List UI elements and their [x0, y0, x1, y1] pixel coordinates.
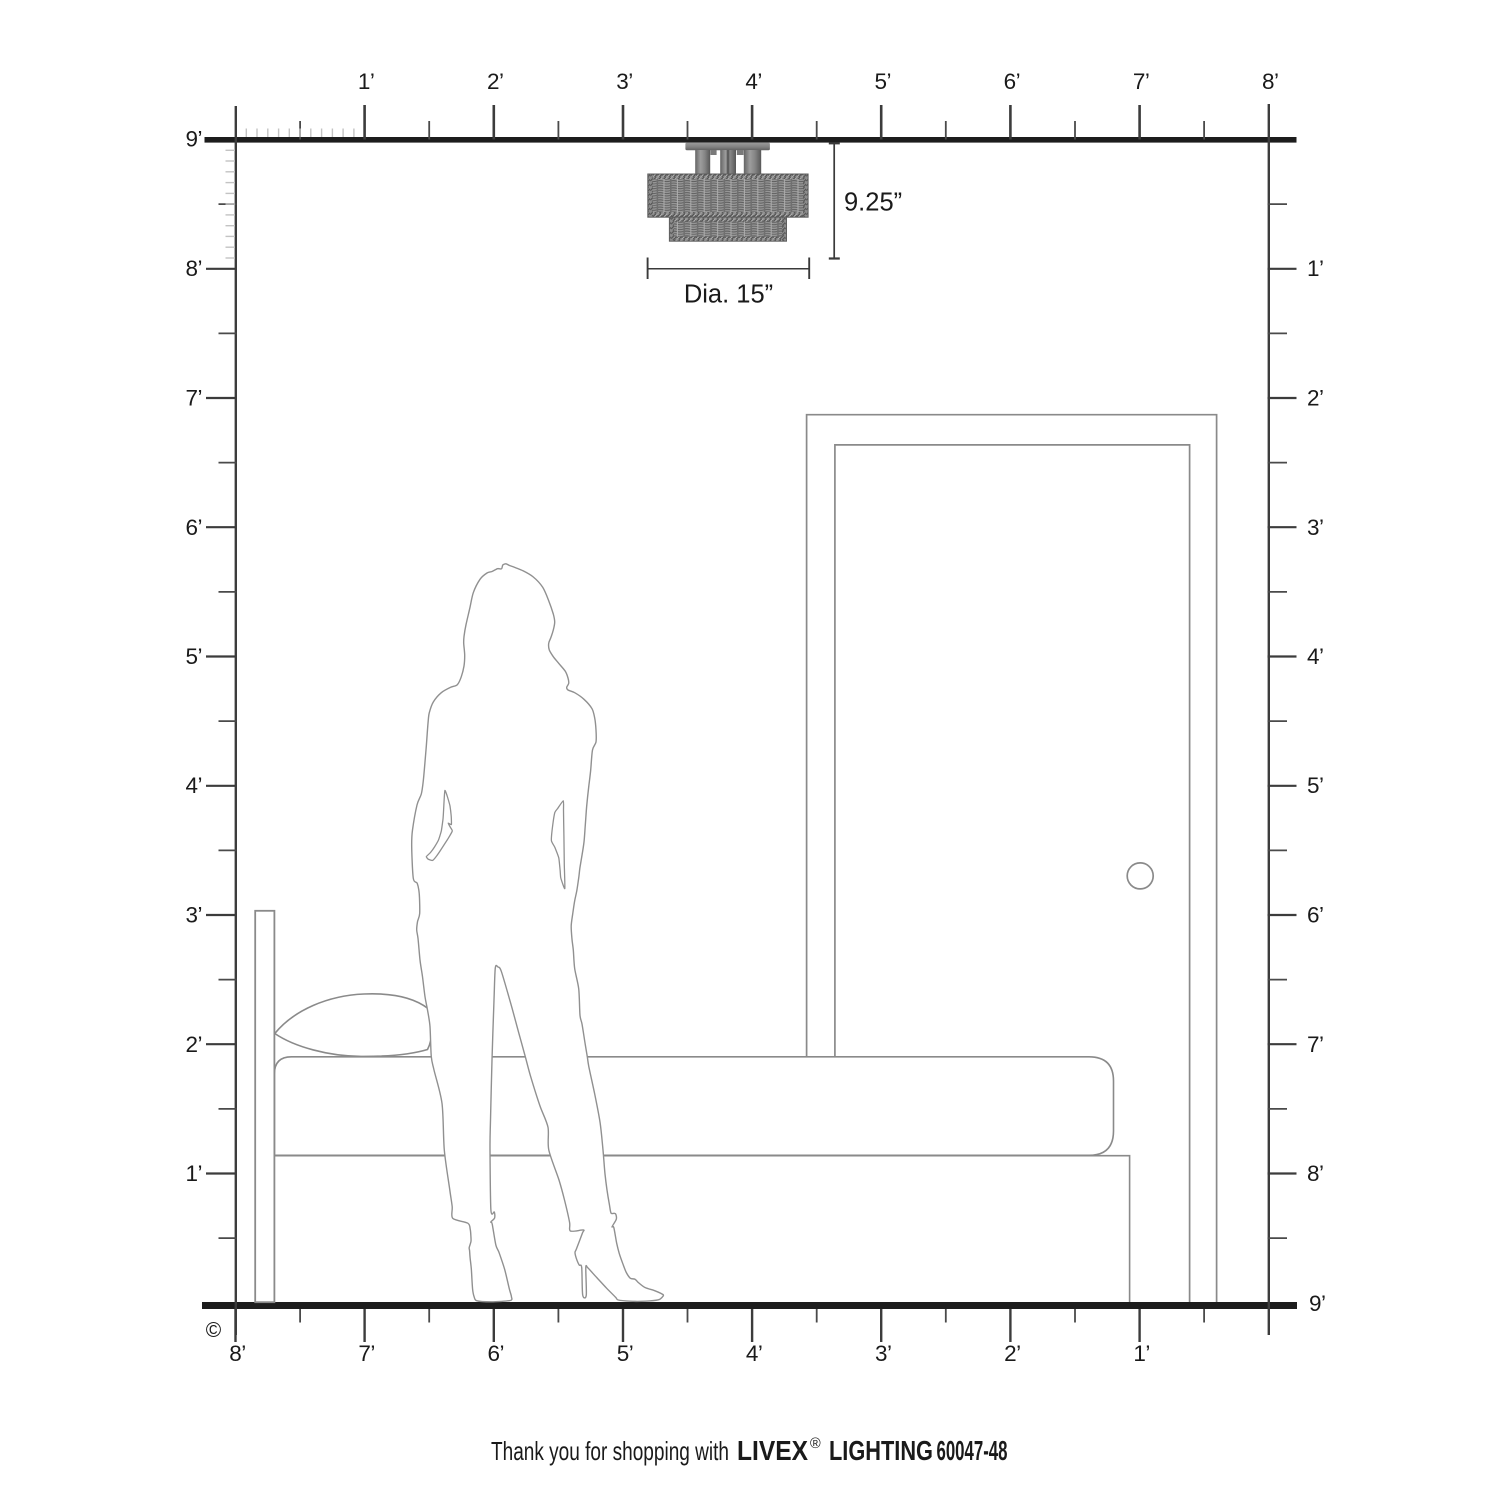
svg-text:Thank you for shopping with: Thank you for shopping with	[491, 1436, 729, 1466]
svg-text:8’: 8’	[229, 1341, 246, 1366]
svg-text:1’: 1’	[1133, 1341, 1150, 1366]
svg-text:LIGHTING: LIGHTING	[829, 1435, 933, 1466]
svg-text:LIVEX: LIVEX	[737, 1435, 809, 1466]
svg-text:9.25”: 9.25”	[844, 189, 902, 217]
svg-text:Dia. 15”: Dia. 15”	[684, 281, 773, 309]
svg-text:4’: 4’	[185, 773, 202, 798]
svg-text:5’: 5’	[185, 644, 202, 669]
svg-text:5’: 5’	[617, 1341, 634, 1366]
svg-text:3’: 3’	[1307, 515, 1324, 540]
svg-text:4’: 4’	[746, 1341, 763, 1366]
svg-text:9’: 9’	[1309, 1291, 1326, 1316]
svg-text:7’: 7’	[1307, 1032, 1324, 1057]
svg-text:7’: 7’	[185, 386, 202, 411]
svg-text:2’: 2’	[1307, 386, 1324, 411]
svg-text:©: ©	[206, 1319, 222, 1342]
svg-text:8’: 8’	[1262, 69, 1279, 94]
svg-text:®: ®	[810, 1436, 821, 1452]
svg-text:6’: 6’	[1004, 69, 1021, 94]
svg-text:2’: 2’	[185, 1032, 202, 1057]
svg-text:1’: 1’	[358, 69, 375, 94]
svg-text:7’: 7’	[358, 1341, 375, 1366]
svg-text:9’: 9’	[185, 127, 202, 152]
svg-text:3’: 3’	[616, 69, 633, 94]
svg-text:8’: 8’	[185, 256, 202, 281]
svg-text:4’: 4’	[1307, 644, 1324, 669]
svg-text:3’: 3’	[185, 903, 202, 928]
svg-text:2’: 2’	[1004, 1341, 1021, 1366]
svg-text:1’: 1’	[1307, 256, 1324, 281]
svg-text:6’: 6’	[488, 1341, 505, 1366]
svg-text:7’: 7’	[1133, 69, 1150, 94]
svg-text:1’: 1’	[185, 1161, 202, 1186]
svg-text:6’: 6’	[185, 515, 202, 540]
svg-text:4’: 4’	[745, 69, 762, 94]
svg-text:8’: 8’	[1307, 1161, 1324, 1186]
svg-text:5’: 5’	[875, 69, 892, 94]
svg-text:60047-48: 60047-48	[937, 1435, 1008, 1466]
svg-text:5’: 5’	[1307, 773, 1324, 798]
svg-text:3’: 3’	[875, 1341, 892, 1366]
svg-text:2’: 2’	[487, 69, 504, 94]
svg-text:6’: 6’	[1307, 903, 1324, 928]
